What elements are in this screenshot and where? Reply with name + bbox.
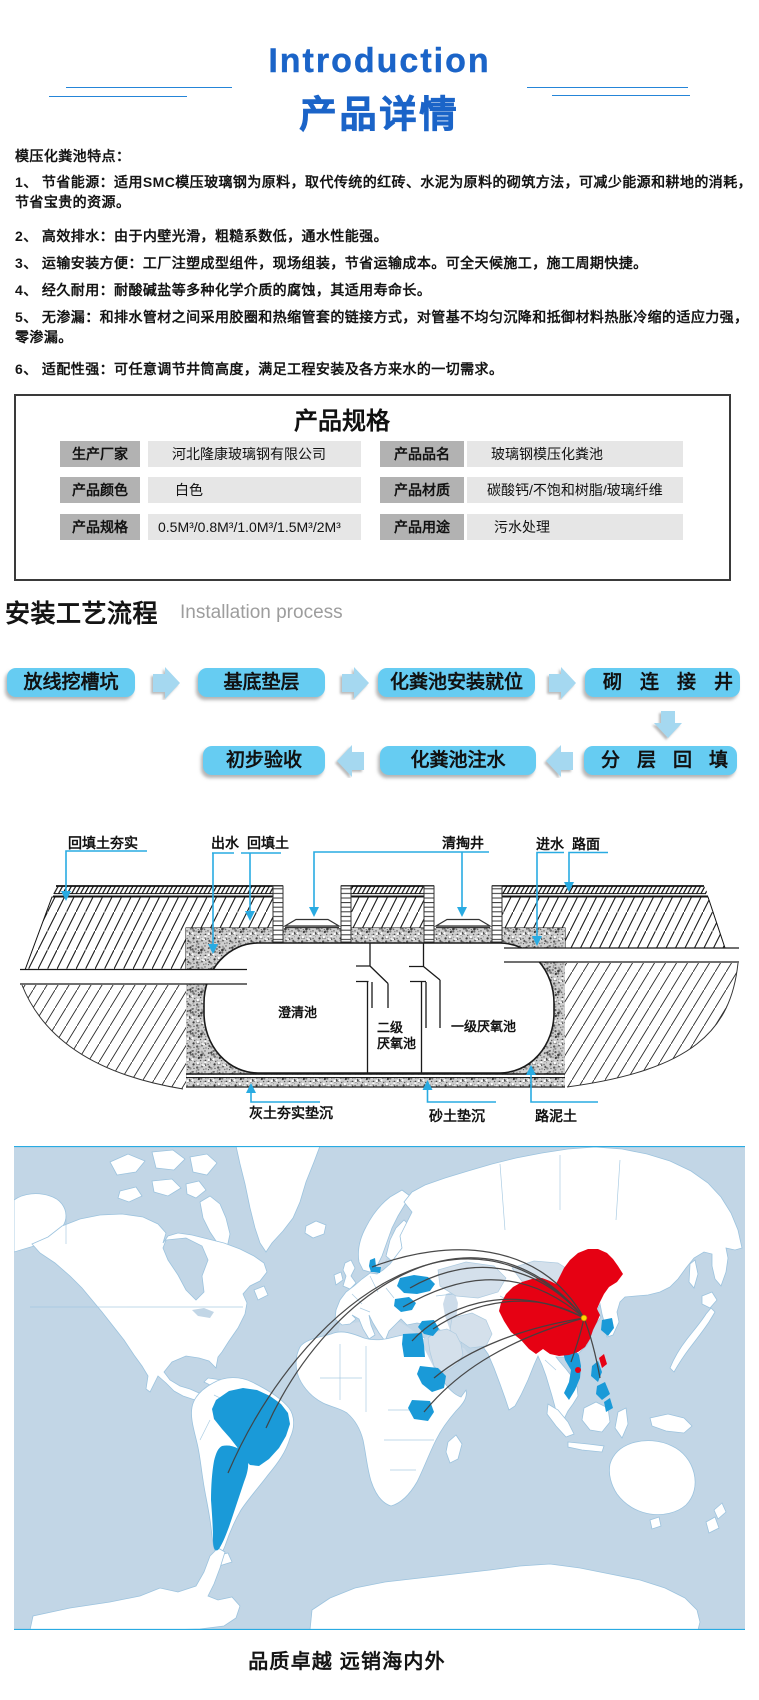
svg-text:砂土垫沉: 砂土垫沉	[428, 1108, 485, 1124]
svg-text:厌氧池: 厌氧池	[377, 1036, 416, 1051]
svg-text:一级厌氧池: 一级厌氧池	[451, 1019, 516, 1034]
svg-text:回填土夯实: 回填土夯实	[68, 835, 138, 851]
svg-text:出水: 出水	[211, 835, 240, 851]
svg-text:清掏井: 清掏井	[442, 835, 484, 851]
svg-text:二级: 二级	[377, 1020, 404, 1035]
svg-text:回填土: 回填土	[247, 835, 289, 851]
svg-text:澄清池: 澄清池	[278, 1005, 317, 1020]
svg-text:路泥土: 路泥土	[535, 1108, 577, 1124]
svg-text:进水: 进水	[536, 836, 565, 852]
svg-text:灰土夯实垫沉: 灰土夯实垫沉	[249, 1105, 333, 1121]
svg-text:路面: 路面	[572, 836, 600, 852]
